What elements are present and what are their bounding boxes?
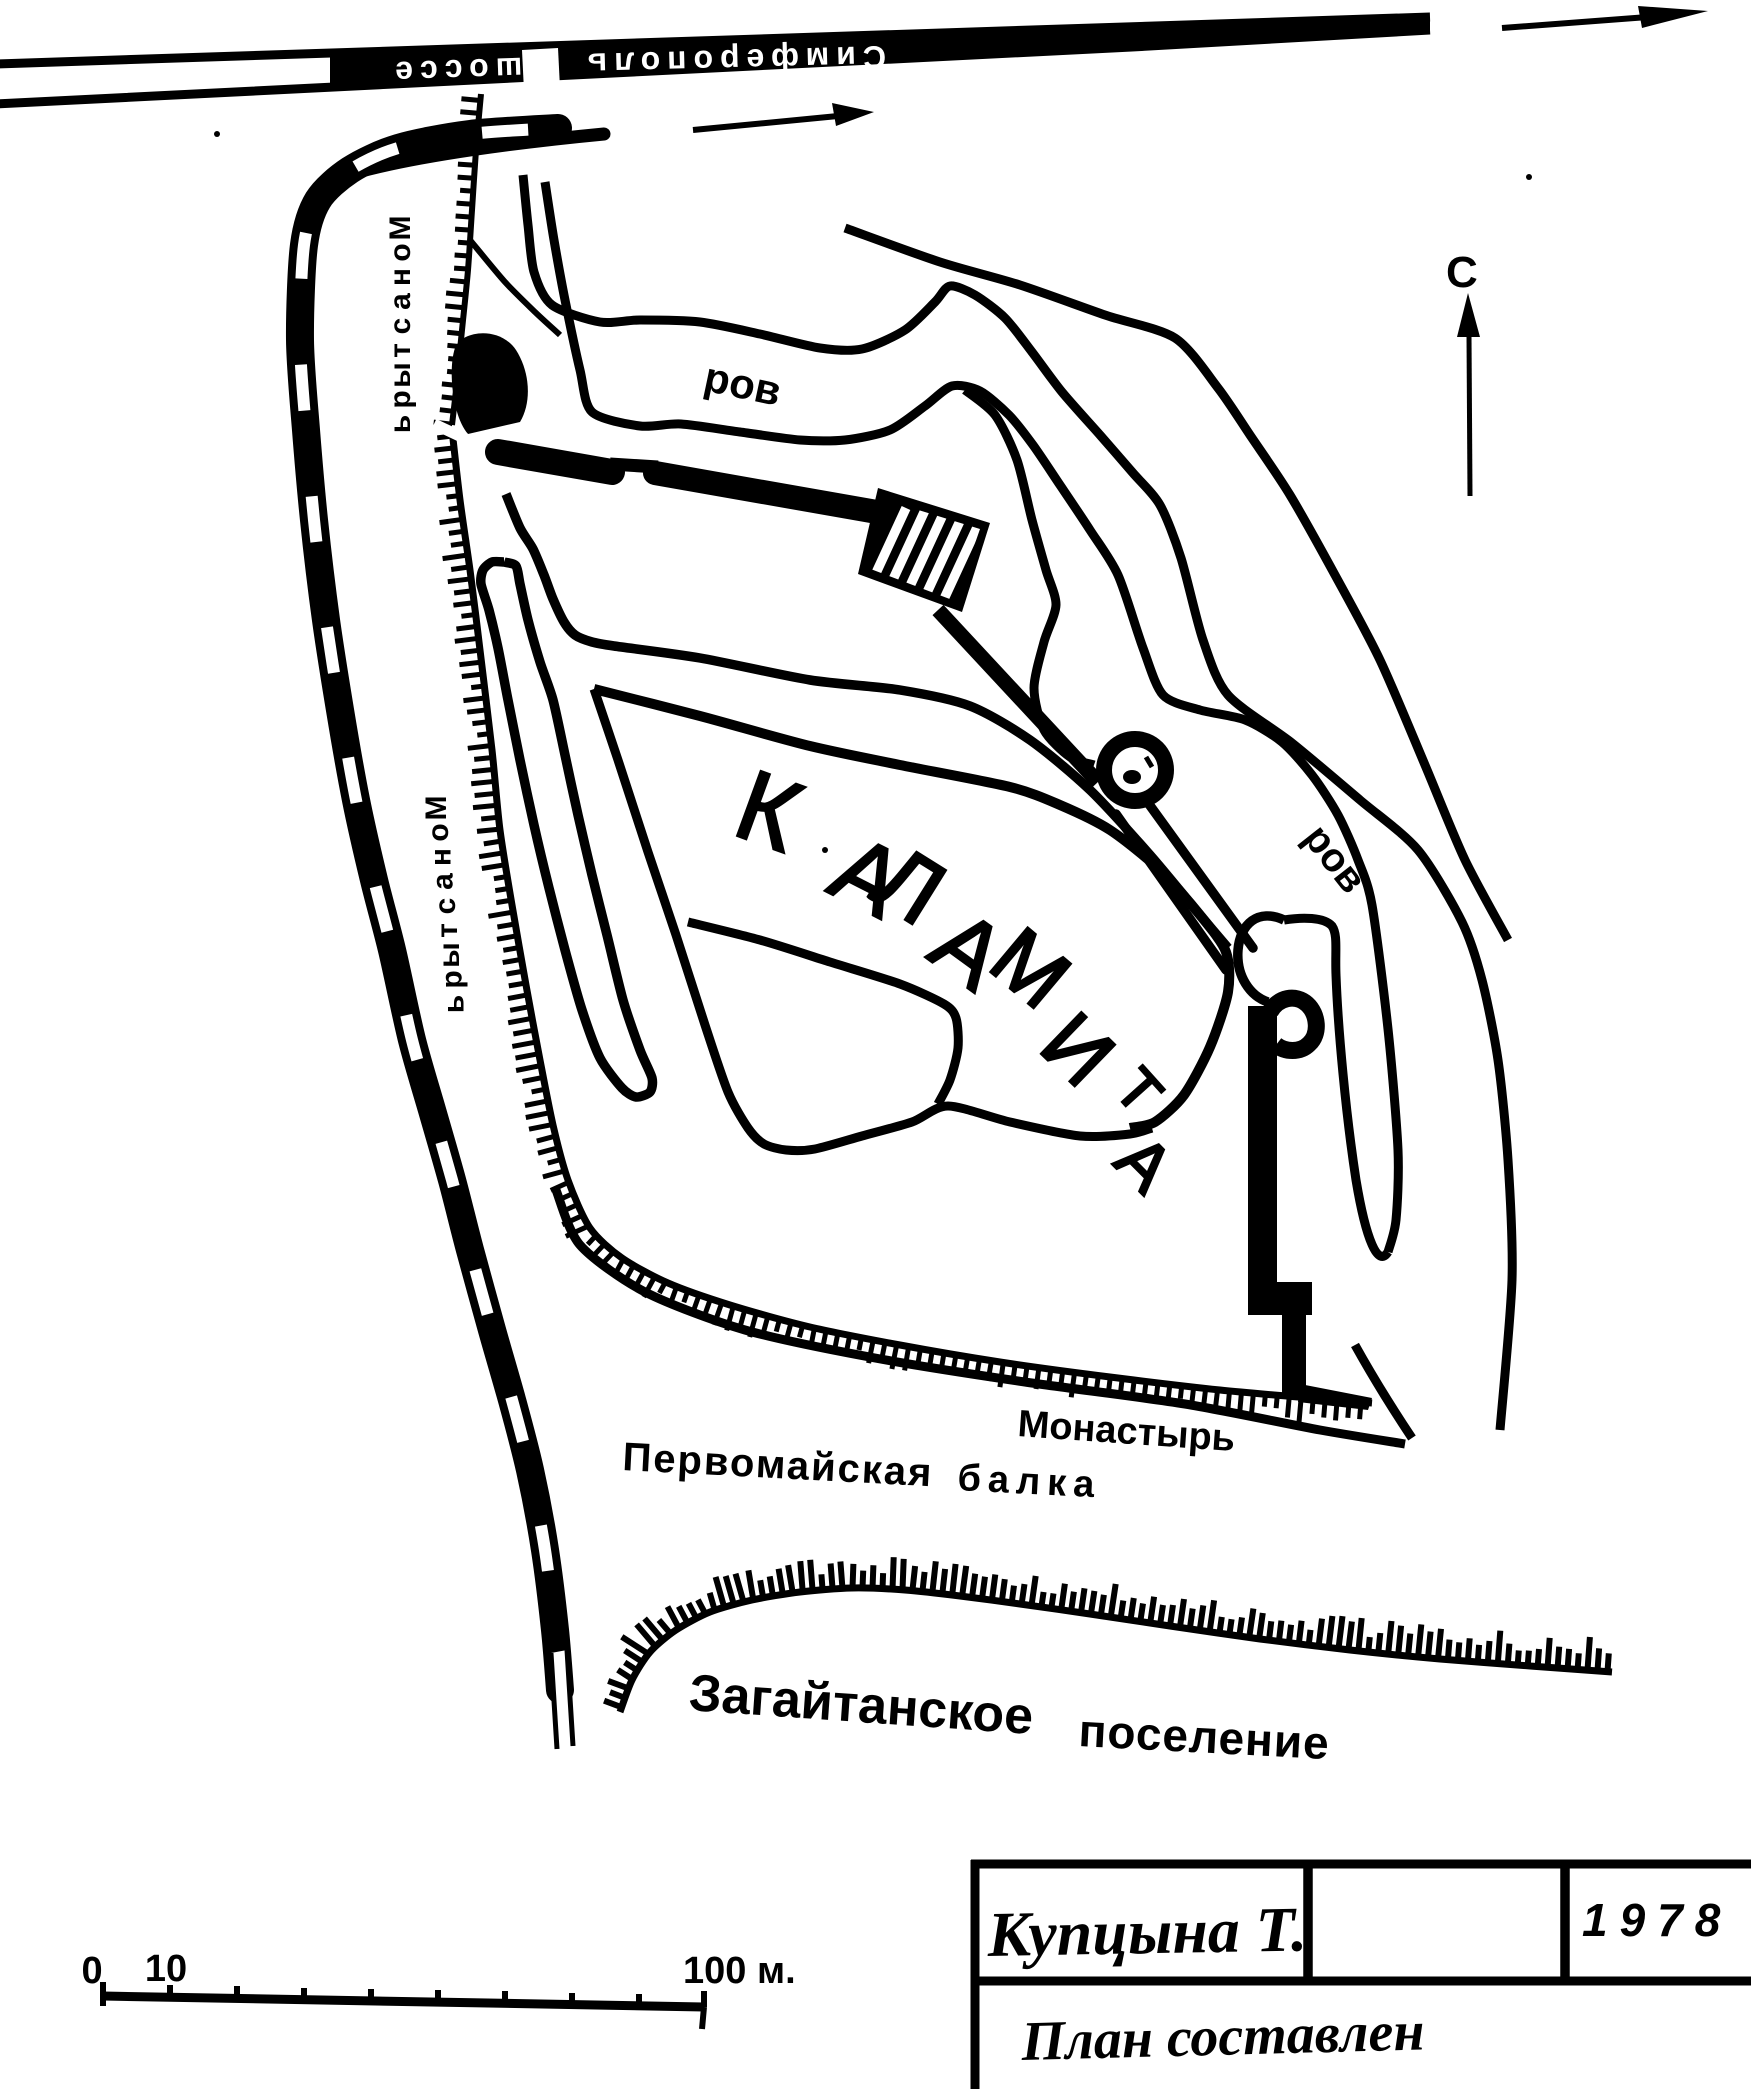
svg-text:М: М [384, 216, 417, 241]
svg-text:10: 10 [145, 1948, 187, 1990]
svg-text:ь: ь [438, 995, 471, 1013]
svg-text:ь: ь [384, 415, 417, 433]
svg-text:а: а [384, 293, 417, 310]
svg-text:р: р [384, 390, 417, 408]
svg-text:ы: ы [433, 942, 466, 968]
svg-text:т: т [431, 923, 464, 938]
svg-text:100 м.: 100 м. [683, 1950, 796, 1992]
svg-text:р: р [435, 970, 468, 988]
svg-text:с: с [384, 318, 417, 335]
svg-text:План составлен: План составлен [1020, 2000, 1425, 2073]
svg-text:шоссе: шоссе [388, 51, 523, 92]
svg-text:Купцына Т.: Купцына Т. [986, 1893, 1307, 1970]
svg-text:а: а [427, 873, 460, 890]
svg-text:с: с [429, 898, 462, 915]
svg-text:ы: ы [384, 362, 417, 388]
svg-text:о: о [422, 823, 455, 841]
svg-text:т: т [384, 343, 417, 358]
svg-text:о: о [384, 243, 417, 261]
svg-text:н: н [384, 268, 417, 286]
svg-text:С: С [1446, 248, 1478, 297]
svg-text:1978: 1978 [1582, 1894, 1732, 1946]
svg-text:0: 0 [81, 1950, 102, 1992]
svg-text:н: н [424, 848, 457, 866]
svg-text:балка: балка [957, 1457, 1103, 1506]
svg-text:М: М [420, 796, 453, 821]
